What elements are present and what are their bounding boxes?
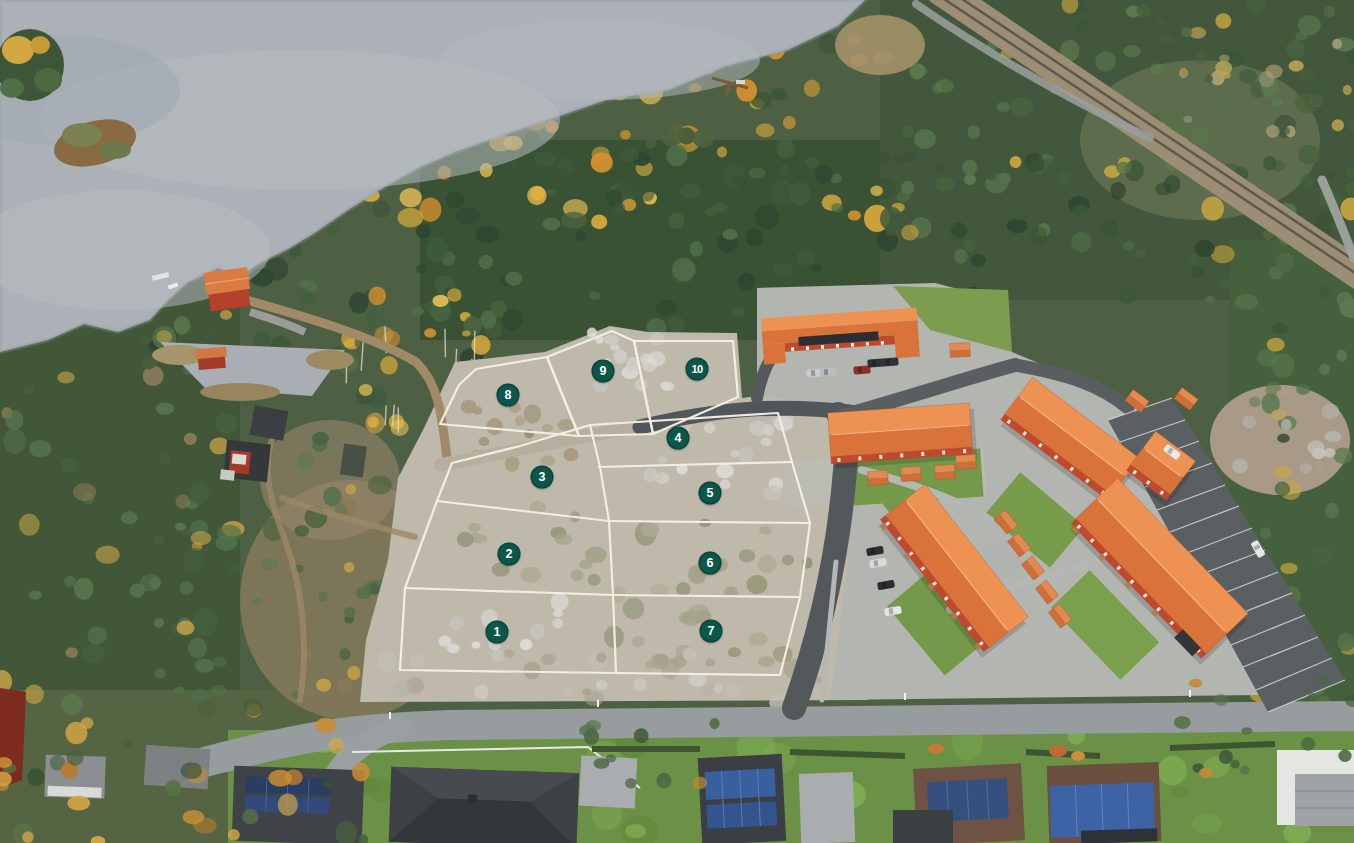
car (853, 365, 871, 374)
garden-shed (950, 342, 971, 357)
aerial-site-photo: 1 2 3 4 5 6 7 8 9 10 (0, 0, 1354, 843)
car (881, 357, 899, 366)
garden-shed (901, 466, 922, 481)
house-large-gray (389, 767, 580, 843)
garden-shed (956, 454, 977, 469)
apartment-building (828, 403, 978, 469)
solar-house-mid (698, 754, 786, 843)
garden-shed (868, 470, 889, 485)
a-frame-cabin (220, 439, 271, 484)
car (819, 367, 837, 376)
solar-house-brown2 (1047, 762, 1162, 843)
aerial-photo-canvas (0, 0, 1354, 843)
garden-shed (935, 464, 956, 479)
